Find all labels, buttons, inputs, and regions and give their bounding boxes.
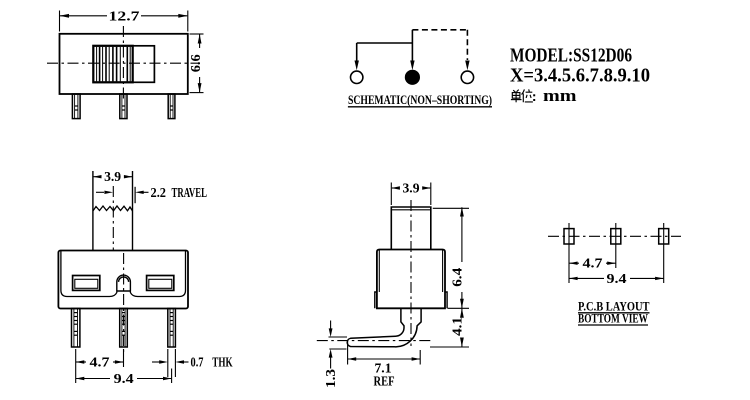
svg-text:SCHEMATIC(NON–SHORTING): SCHEMATIC(NON–SHORTING) bbox=[348, 92, 492, 107]
svg-text:6.6: 6.6 bbox=[189, 54, 204, 72]
svg-text:6.4: 6.4 bbox=[450, 268, 465, 287]
svg-text:mm: mm bbox=[543, 86, 577, 105]
svg-text:BOTTOM VIEW: BOTTOM VIEW bbox=[578, 311, 648, 326]
svg-text:REF: REF bbox=[374, 374, 395, 389]
svg-text:1.3: 1.3 bbox=[323, 369, 338, 388]
svg-text:THK: THK bbox=[212, 355, 233, 370]
svg-text:9.4: 9.4 bbox=[607, 271, 627, 286]
svg-text:4.7: 4.7 bbox=[90, 355, 110, 370]
svg-text:X=3.4.5.6.7.8.9.10: X=3.4.5.6.7.8.9.10 bbox=[510, 65, 650, 87]
svg-text:3.9: 3.9 bbox=[403, 181, 420, 196]
svg-text:0.7: 0.7 bbox=[191, 355, 204, 370]
svg-text:MODEL:SS12D06: MODEL:SS12D06 bbox=[510, 45, 632, 67]
svg-text:4.7: 4.7 bbox=[583, 256, 603, 271]
svg-text:4.1: 4.1 bbox=[450, 317, 465, 336]
svg-text:3.9: 3.9 bbox=[104, 169, 121, 184]
svg-text:9.4: 9.4 bbox=[114, 371, 134, 386]
svg-text:TRAVEL: TRAVEL bbox=[172, 185, 208, 200]
svg-text:12.7: 12.7 bbox=[109, 10, 140, 25]
svg-text:2.2: 2.2 bbox=[151, 185, 167, 200]
